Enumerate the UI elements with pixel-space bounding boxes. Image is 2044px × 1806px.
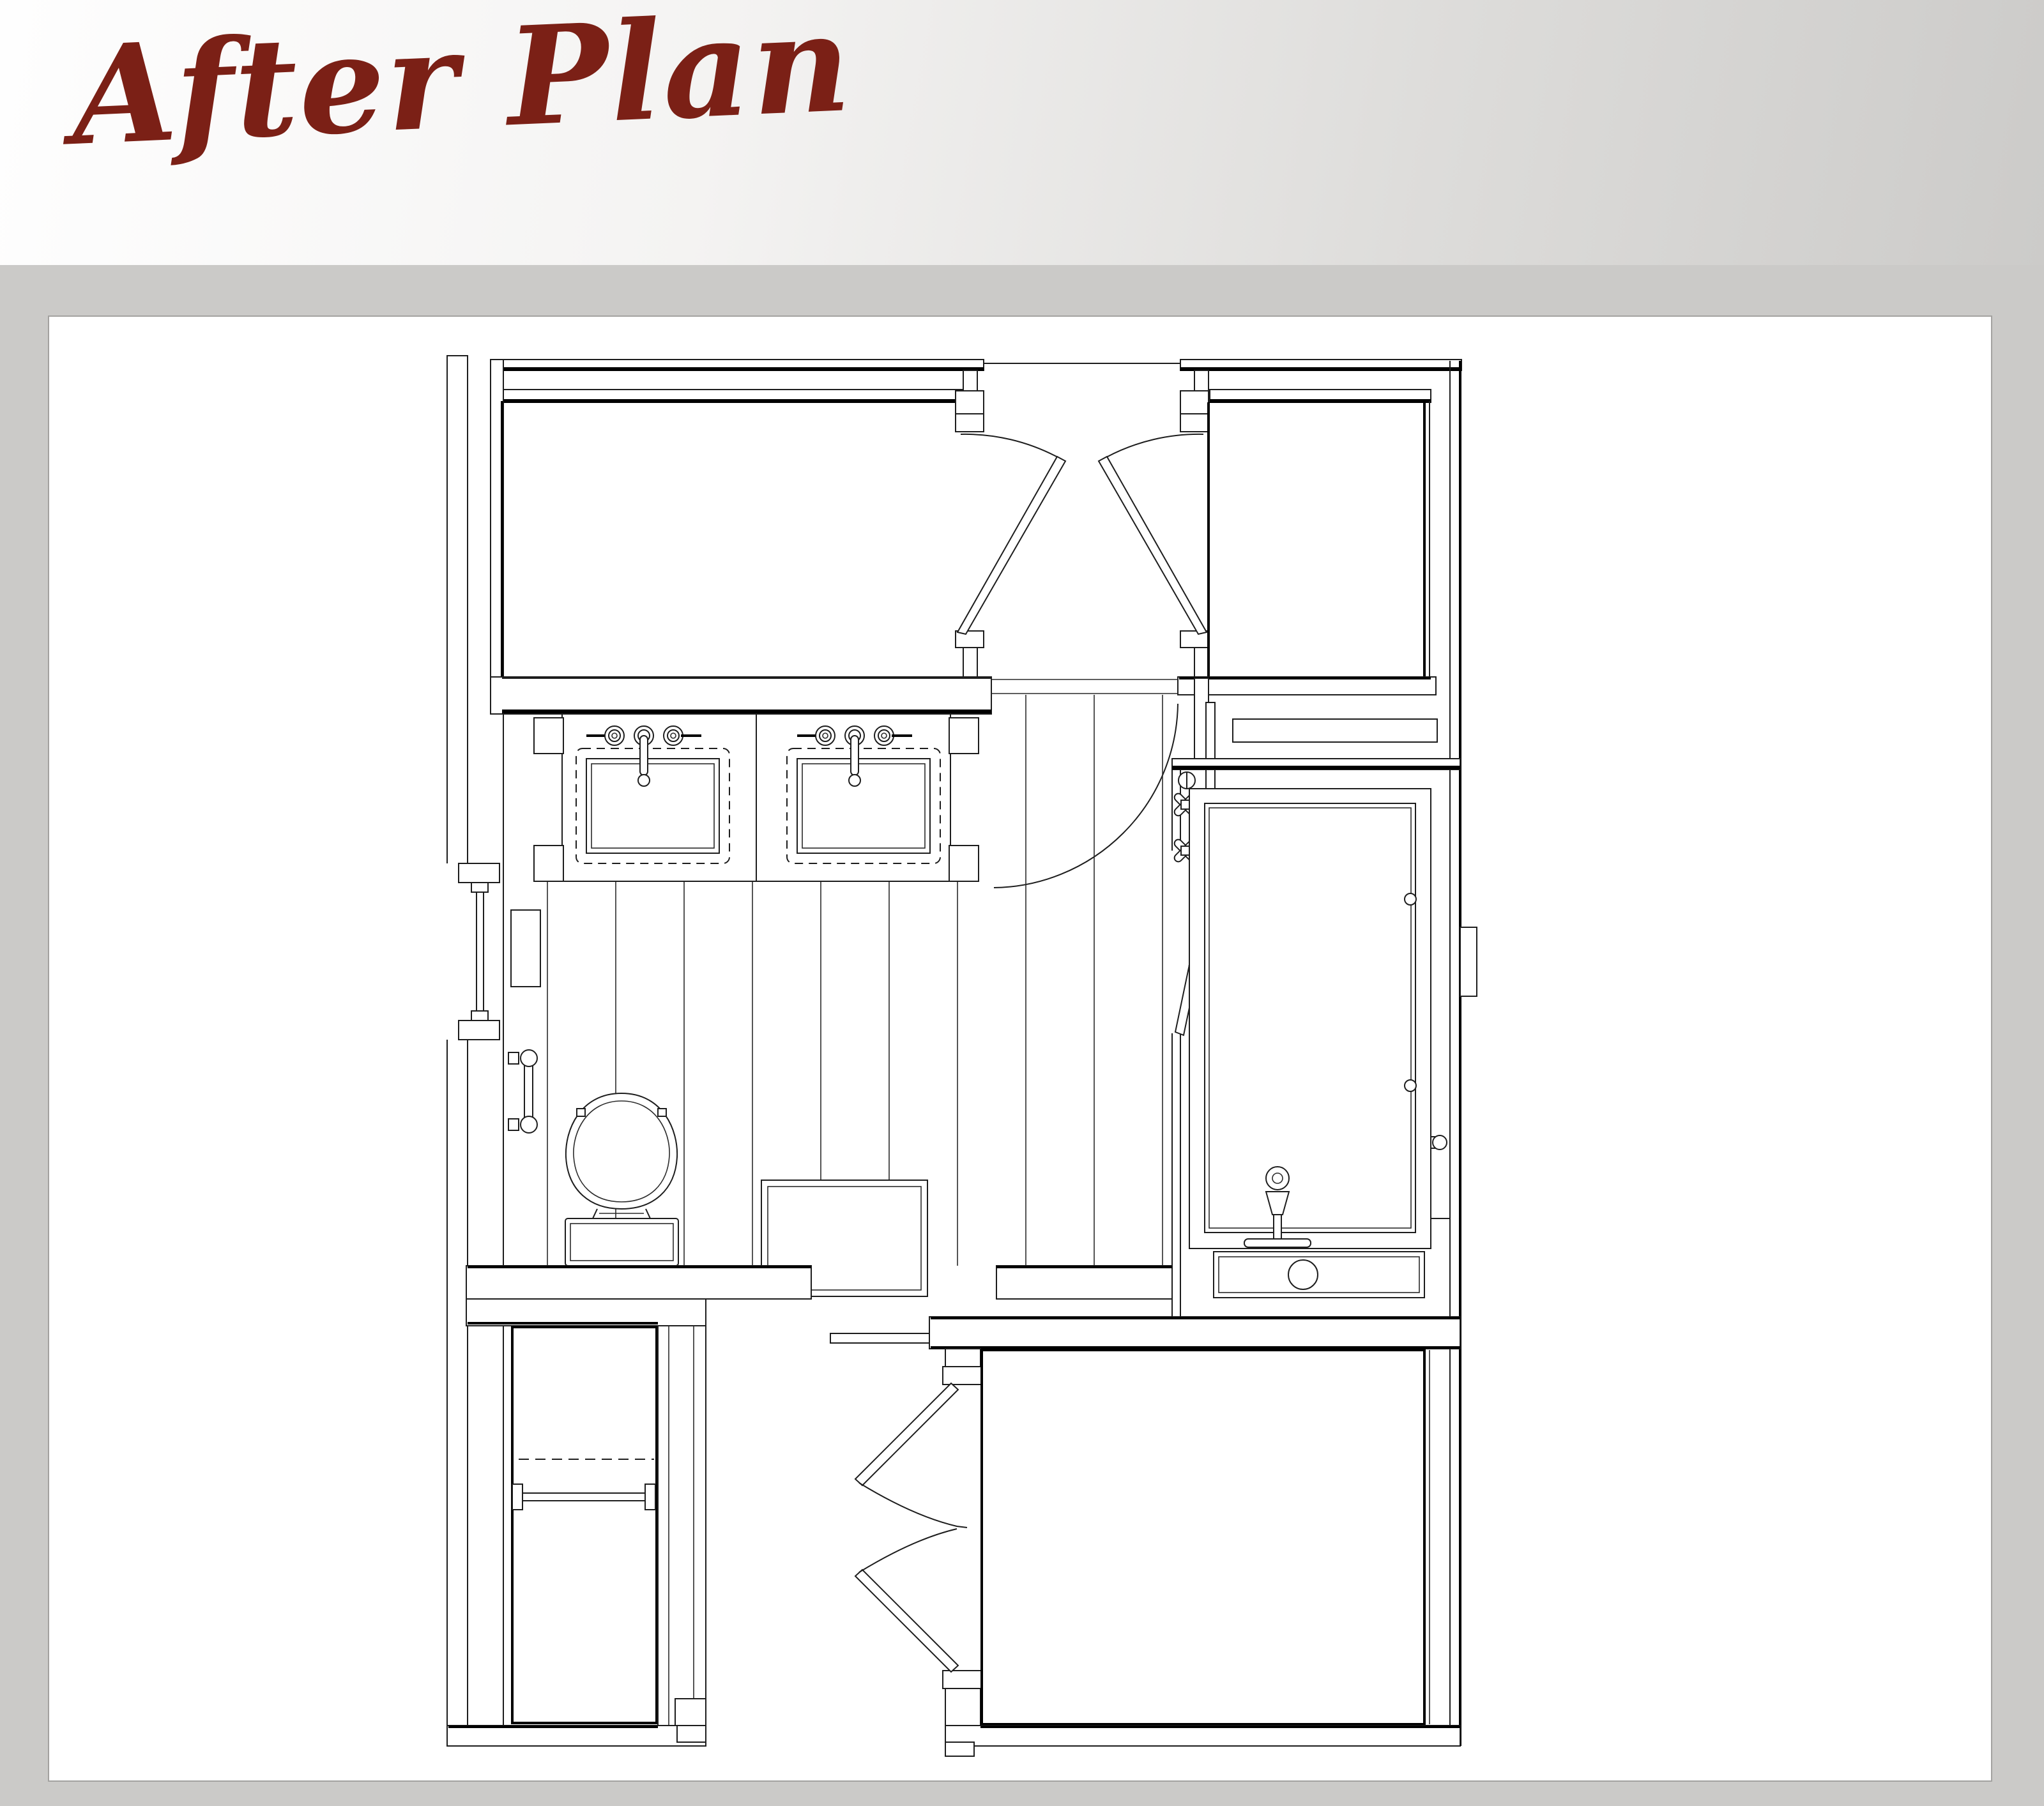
- bottom-right-room-top-wall: [929, 1317, 1460, 1349]
- wall-niche: [511, 910, 540, 987]
- toilet: [565, 1093, 678, 1266]
- tub-enclosure: [1172, 759, 1477, 1317]
- right-wall-recess: [1460, 927, 1477, 996]
- floor-plan-drawing: [0, 0, 2044, 1806]
- room-top-right: [1180, 370, 1431, 678]
- bathtub: [1189, 789, 1431, 1248]
- vestibule-doors: [957, 434, 1207, 634]
- double-vanity: [534, 714, 979, 881]
- under-tub-drawer: [1214, 1252, 1424, 1298]
- linen-closet: [466, 1299, 706, 1726]
- room-walk-in-closet: [491, 360, 984, 695]
- wall-shelf: [1233, 719, 1437, 742]
- bifold-doors: [855, 1383, 967, 1672]
- towel-bar: [508, 1050, 537, 1133]
- room-bottom-right: [855, 1349, 1430, 1726]
